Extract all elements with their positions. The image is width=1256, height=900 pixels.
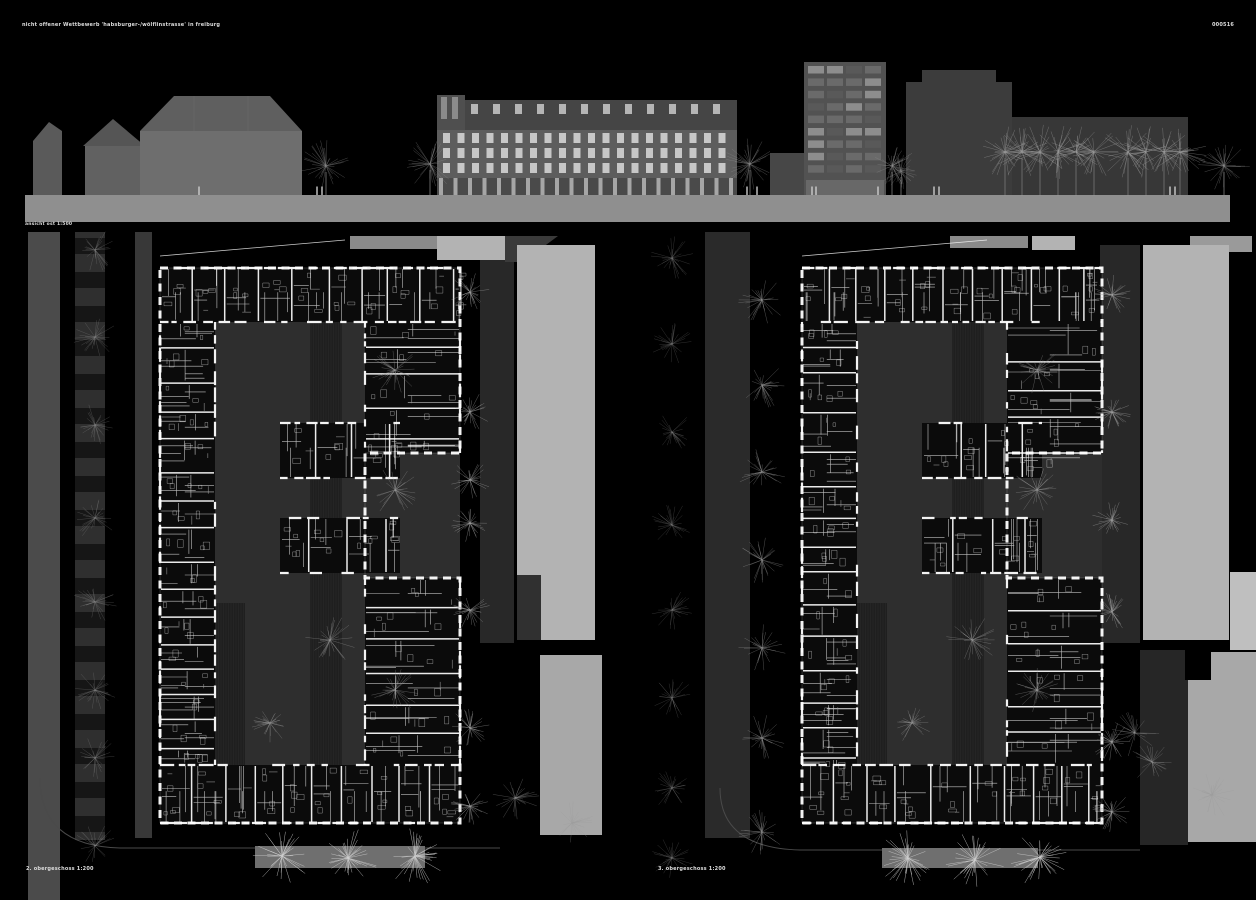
tree — [1120, 127, 1165, 178]
tree — [884, 831, 929, 885]
tree — [454, 598, 490, 627]
tree — [452, 274, 489, 309]
tree — [1050, 127, 1098, 173]
site-plan-left — [0, 0, 1256, 900]
tree — [1093, 503, 1128, 534]
tree — [252, 712, 283, 743]
building-block — [801, 267, 1103, 824]
tree — [1019, 354, 1059, 393]
tree — [897, 708, 929, 740]
tree — [946, 835, 1003, 887]
tree — [653, 323, 691, 363]
tree — [493, 779, 539, 819]
tree — [75, 673, 115, 709]
tree — [739, 625, 785, 670]
tree — [651, 237, 693, 279]
tree — [253, 832, 305, 882]
tree — [655, 772, 686, 805]
site-boundary-dashed — [160, 268, 460, 823]
tree — [995, 128, 1047, 176]
tree — [377, 470, 415, 511]
tree — [746, 369, 784, 408]
elevation-caption: ansicht ost 1:500 — [25, 222, 72, 227]
plan-right — [651, 232, 1256, 887]
tree — [739, 810, 780, 854]
tree — [1095, 400, 1131, 428]
tree — [451, 794, 488, 825]
tree — [739, 281, 781, 324]
tree — [875, 147, 914, 183]
presentation-board: nicht offener Wettbewerb 'habsburger-/wö… — [0, 0, 1256, 900]
tree — [302, 140, 349, 191]
tree — [652, 505, 689, 539]
board-title: nicht offener Wettbewerb 'habsburger-/wö… — [22, 22, 220, 28]
tree — [1133, 746, 1171, 778]
tree — [983, 127, 1032, 175]
tree — [1095, 724, 1130, 761]
tree — [1093, 275, 1130, 312]
tree — [1199, 145, 1250, 189]
tree — [452, 464, 489, 498]
tree — [306, 618, 355, 660]
plan-caption-left: 2. obergeschoss 1:200 — [26, 866, 94, 872]
tree — [1011, 838, 1066, 883]
tree — [1093, 797, 1129, 831]
site-plan-right — [0, 0, 1256, 900]
tree — [660, 416, 687, 448]
tree — [77, 826, 114, 861]
plan-caption-right: 3. obergeschoss 1:200 — [658, 866, 726, 872]
tree — [743, 538, 783, 583]
tree — [1072, 133, 1121, 175]
tree — [559, 802, 592, 843]
project-code: 000516 — [1212, 22, 1234, 28]
tree — [1016, 469, 1056, 511]
tree — [947, 619, 995, 660]
elevation-drawing — [0, 0, 1256, 900]
tree — [394, 829, 441, 883]
tree — [1157, 129, 1206, 172]
tree — [1141, 128, 1187, 174]
tree — [1105, 125, 1148, 177]
tree — [452, 709, 489, 745]
courtyard — [160, 268, 460, 823]
elevation-trees — [302, 125, 1250, 196]
tree — [743, 715, 784, 758]
tree — [740, 450, 785, 485]
tree — [1016, 668, 1058, 711]
courtyard — [802, 268, 1102, 823]
tree — [74, 319, 114, 356]
tree — [373, 351, 415, 392]
tree — [1193, 774, 1233, 815]
tree — [372, 670, 418, 709]
tree — [1099, 593, 1123, 628]
tree — [1112, 712, 1159, 756]
tree — [655, 680, 690, 718]
ground-strip — [25, 195, 1230, 222]
tree — [726, 139, 770, 190]
plan-left — [28, 232, 602, 900]
tree — [329, 830, 376, 876]
tree — [81, 405, 113, 444]
tree — [652, 592, 692, 629]
tree — [74, 589, 116, 621]
tree — [1031, 126, 1084, 178]
tree — [83, 232, 113, 270]
tree — [884, 154, 916, 189]
people — [199, 187, 1175, 196]
elevation-buildings — [25, 62, 1230, 222]
tree — [456, 394, 488, 429]
tree — [77, 500, 112, 536]
tree — [407, 142, 448, 186]
tree — [452, 509, 487, 541]
building-block — [159, 267, 466, 824]
tree — [80, 739, 114, 779]
site-boundary-dashed — [802, 268, 1102, 823]
tree — [1016, 125, 1062, 172]
